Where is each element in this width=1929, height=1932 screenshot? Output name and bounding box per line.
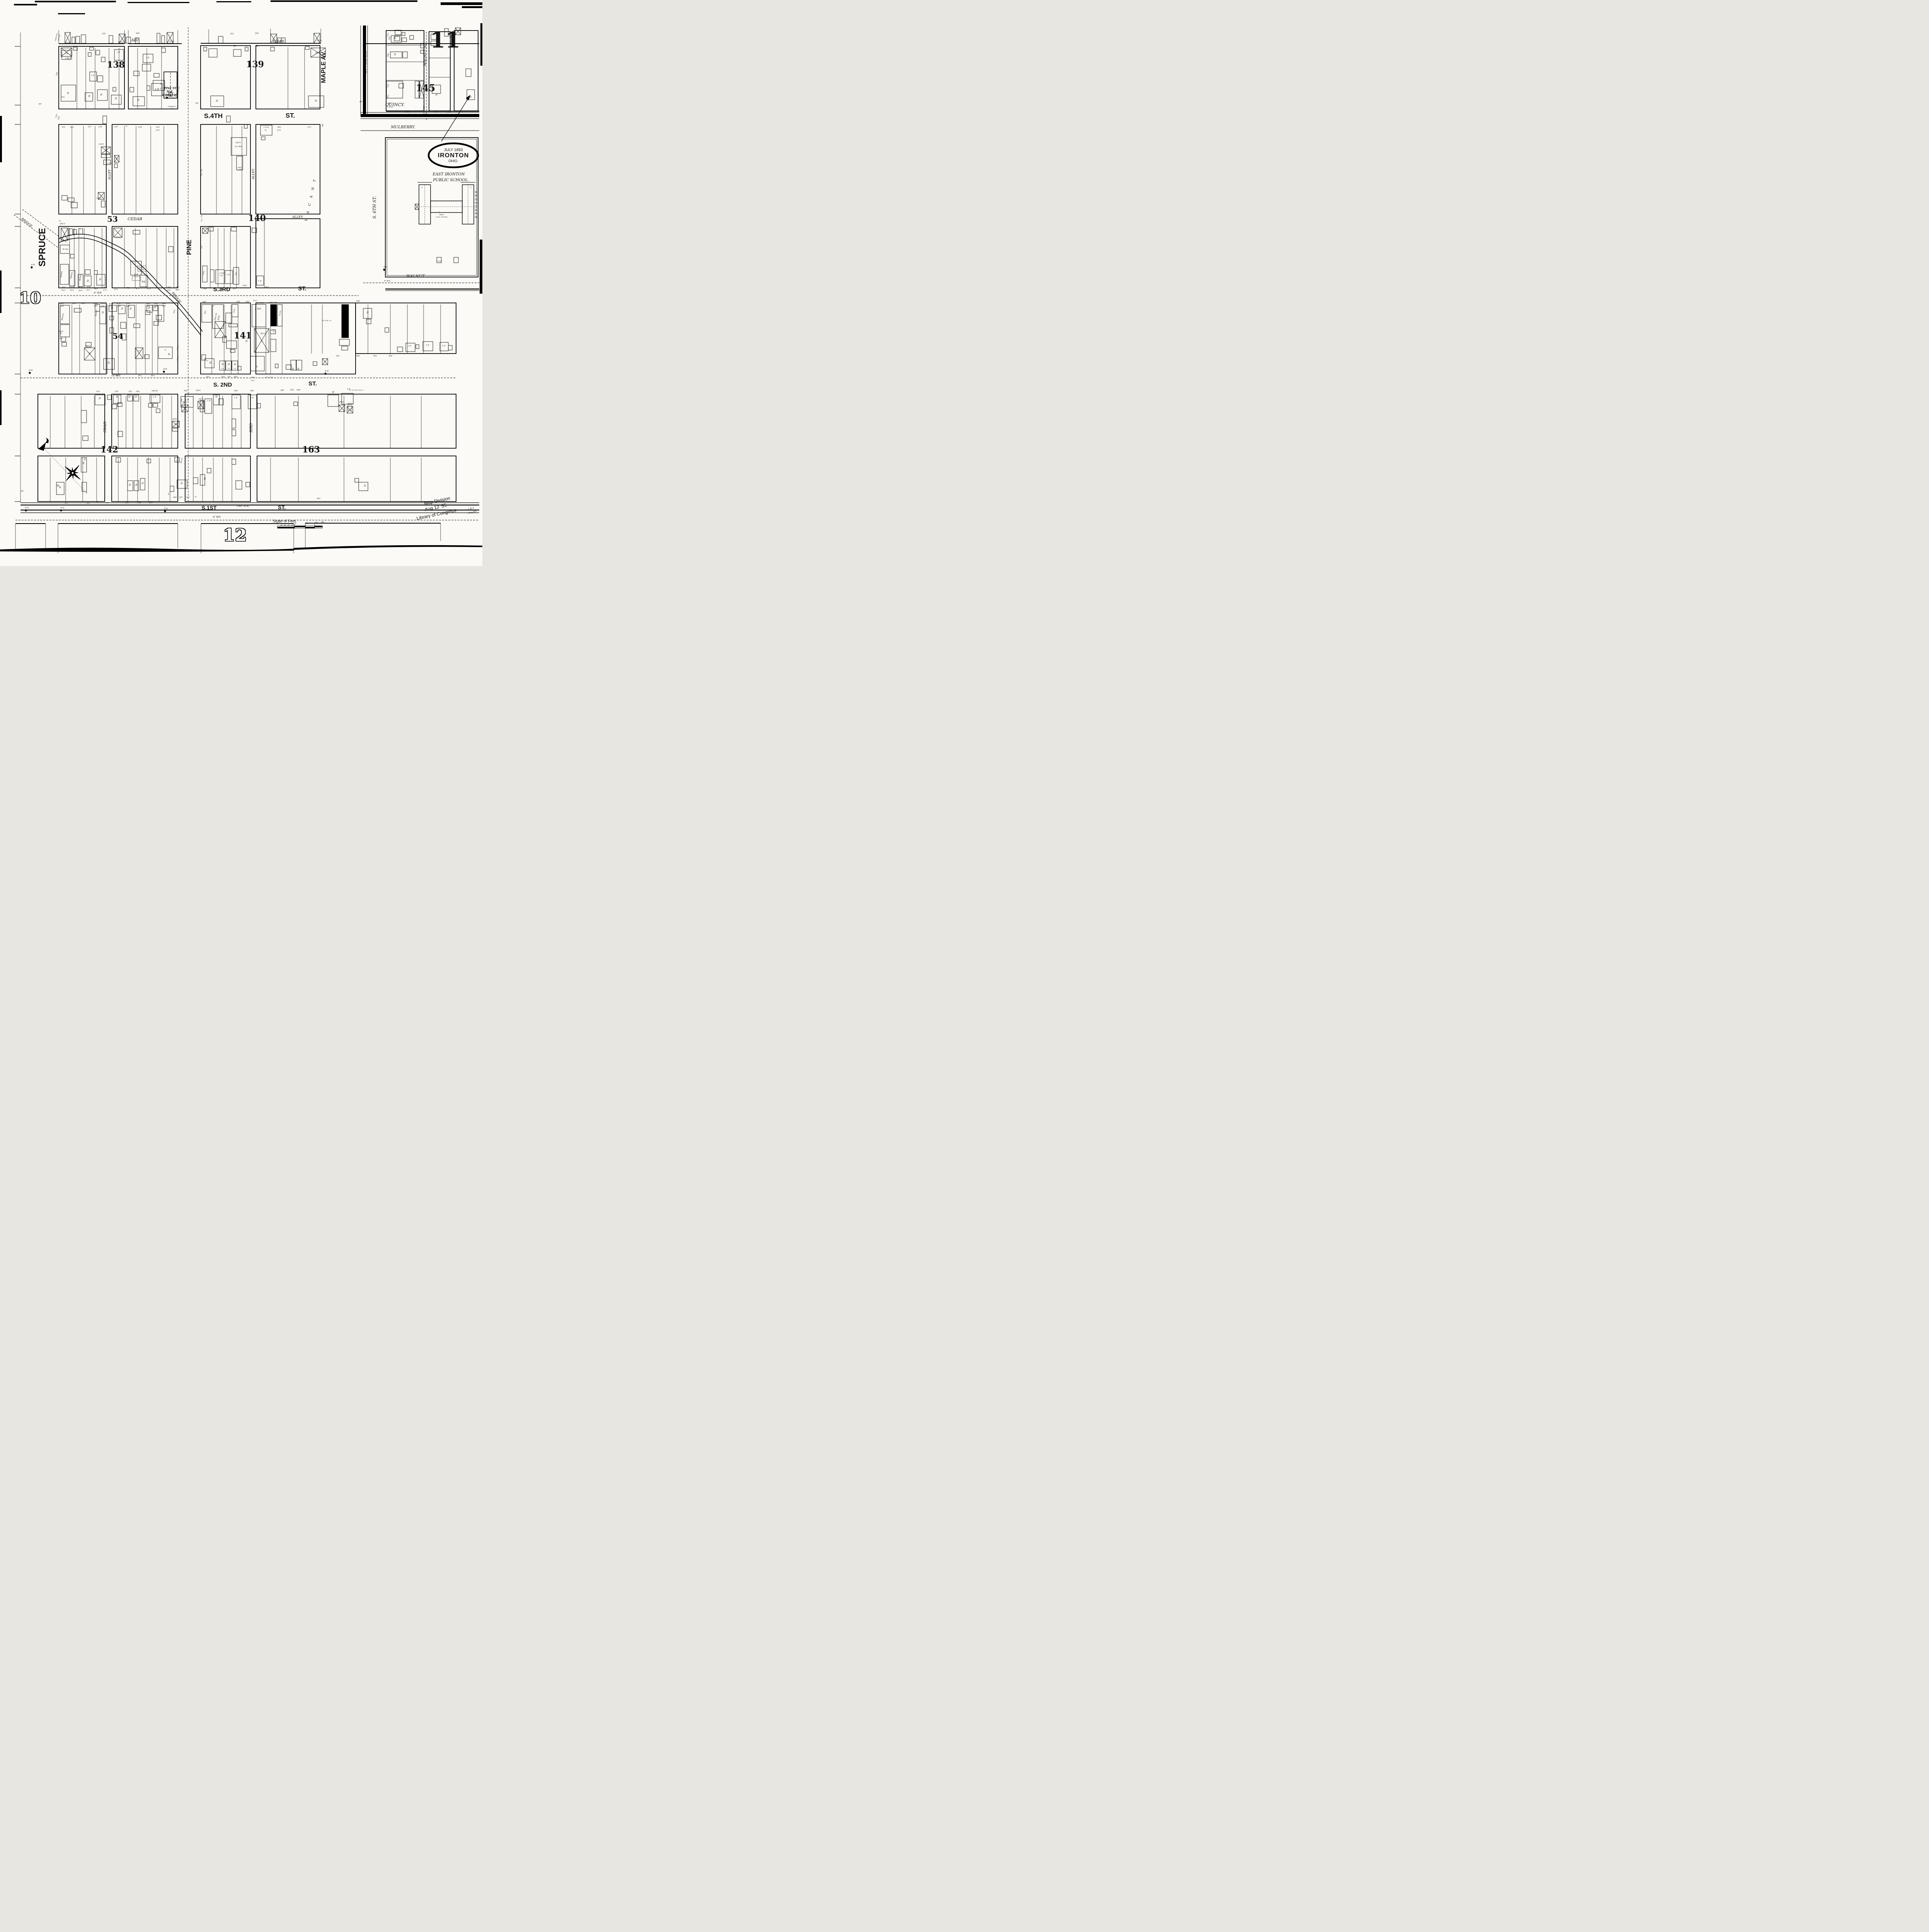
house-number-label: 25' TO EAVES [165,97,176,99]
house-number-label: 373½ [315,53,320,54]
house-number-label: 462½ [85,345,91,347]
house-number-label: 66' [39,104,42,105]
house-number-label: 66' [322,124,325,127]
house-number-label: 1 D [91,75,95,77]
map-label: S. 2ND [213,382,232,388]
map-label: D [135,396,137,398]
map-label: IRONTON [438,153,469,159]
map-label: Gro. [389,107,393,109]
house-number-label: 2 D [347,389,351,391]
house-number-label: 2 D [408,345,412,347]
house-number-label: 349 [203,288,207,290]
map-label: Feed. [218,315,220,321]
house-number-label: (481) [167,289,171,291]
house-number-label: 6" W.P. [384,281,391,282]
house-number-label: 362½ [260,333,266,335]
map-label: Gro. [174,309,176,314]
house-number-label: 400½ [348,403,353,405]
house-number-label: 481 [138,375,142,377]
map-label: D. [209,362,212,364]
map-label: AID [131,39,138,43]
house-number-label: 352½ [235,142,241,144]
house-number-label: 360½ [241,336,246,338]
house-number-label: 393 [373,355,377,357]
map-label: D [298,368,300,371]
house-number-label: 360 [245,301,249,303]
house-number-label: 338 [114,391,118,393]
house-number-label: 342 [128,391,132,393]
house-number-label: (367) [251,380,255,381]
house-number-label: 324 [60,306,64,308]
map-label: COAL STOVES. [436,216,448,218]
map-label: OPEN [238,167,242,168]
map-label: SWAN [104,421,107,432]
house-number-label: (462) [60,303,64,304]
house-number-label: 150 [321,522,324,524]
map-label: D [83,463,85,465]
map-label: D. [315,100,318,102]
house-number-label: 347 [149,502,153,504]
house-number-label: 344 [136,33,140,35]
house-number-label: 349 [173,497,177,499]
house-number-label: 2 [421,187,422,189]
house-number-label: (363) [277,129,281,131]
map-label: Hardw [60,271,63,278]
house-number-label: 2 [470,187,471,189]
house-number-label: 140 [248,214,266,223]
map-label: D.H. [163,369,167,371]
map-label: D [160,83,162,85]
map-label: D. [234,45,237,48]
house-number-label: 2 Sal. [255,308,261,310]
map-label: D [100,94,102,96]
map-label: W [57,485,59,487]
map-label: VACANT [305,174,318,222]
house-number-label: 213 [387,84,390,88]
house-number-label: 129 [201,169,203,172]
house-number-label: 132 [201,219,203,222]
map-label: ALLEY. [252,168,255,179]
house-number-label: 2 D [155,88,159,91]
house-number-label: 129 131 [177,86,180,93]
house-number-label: 351⅓ [199,399,204,401]
house-number-label: 54 [112,332,123,340]
house-number-label: 337 [106,502,109,504]
house-number-label: 2 D [250,397,254,399]
house-number-label: 1 D [220,275,223,277]
house-number-label: 218½ [404,112,409,114]
house-number-label: 1 D [207,400,211,402]
map-label: Barber [95,310,98,316]
map-label: D.H. [25,507,29,509]
house-number-label: 394 [290,389,294,391]
house-number-label: 359 [232,288,236,290]
map-label: Sal. [204,310,207,314]
house-number-label: 6" W.P. [94,292,102,294]
map-label: Ho. [273,331,275,333]
house-number-label: 464 [72,303,76,305]
map-label: PINE [186,240,192,255]
house-number-label: 475½ [116,237,121,239]
map-label: Smo. [272,329,276,331]
house-number-label: 30 [284,524,286,526]
house-number-label: 477 [136,288,140,290]
map-label: D [99,398,101,400]
map-label: D [116,396,118,398]
house-number-label: 343½ [169,41,174,43]
house-number-label: 466 [81,303,85,305]
map-label: Aug.93. [468,510,477,515]
house-number-label: 1½ [164,349,167,351]
house-number-label: (101) [177,356,179,361]
house-number-label: 66' [359,101,363,103]
house-number-label: 359 [233,376,237,378]
house-number-label: (476) [126,303,130,304]
house-number-label: 1¼" W.P. [424,105,426,114]
house-number-label: 2 [261,341,262,343]
house-number-label: 475 [126,287,129,289]
house-number-label: 344 [136,391,140,393]
house-number-label: 1½ [175,423,177,425]
house-number-label: 1½ [234,368,236,369]
map-label: D [89,95,90,98]
house-number-label: 329 [87,287,90,289]
map-label: Barber [79,274,82,281]
house-number-label: 40 [281,524,283,526]
map-label: I.&C.R.R. [237,505,250,508]
house-number-label: 16' [194,496,197,498]
house-number-label: 2 D [426,345,429,347]
map-label: D [115,98,117,100]
house-number-label: 332 [101,306,105,308]
map-label: BRIDGE [171,291,181,303]
map-label: DWEL. [139,267,144,269]
house-number-label: (461) [61,289,66,291]
house-number-label: 357 [227,376,231,378]
house-number-label: (470) [101,303,105,304]
house-number-label: 205 [388,36,391,41]
house-number-label: 66' [168,492,170,495]
house-number-label: 16' [59,220,61,222]
map-label: ST. [286,112,295,119]
house-number-label: 66' [21,491,24,493]
house-number-label: 50 [276,523,278,525]
house-number-label: 368 [250,390,254,392]
house-number-label: 329 [98,126,102,128]
house-number-label: 355 [219,288,223,290]
house-number-label: 369 [251,377,255,379]
house-number-label: 351 [206,376,210,378]
house-number-label: 12 [223,527,247,544]
house-number-label: 333 [103,287,107,289]
house-number-label: 6" W.P. [213,516,221,519]
house-number-label: 327 [88,126,92,128]
house-number-label: 323 [61,287,65,289]
house-number-label: (468) [94,303,98,304]
house-number-label: 57' [176,459,178,462]
house-number-label: 389 [356,355,360,357]
map-label: D [102,312,104,314]
house-number-label: 75' [170,108,173,109]
map-label: OHIO. [448,160,458,163]
house-number-label: 139 [246,60,264,69]
house-number-label: 383 [317,498,320,500]
map-label: D. [364,485,367,487]
map-label: W. Ho. [63,249,69,251]
map-label: WALNUT AL. [424,43,427,66]
house-number-label: 16' [96,502,99,503]
house-number-label: 1½ [138,350,140,352]
house-number-label: 138 [107,61,125,69]
map-label: Ice Ho. [279,310,281,316]
house-number-label: 353 [179,497,183,499]
house-number-label: 365 [277,127,281,129]
house-number-label: 461½ [60,223,65,225]
house-number-label: 368 370 [269,302,277,304]
house-number-label: 1 D [258,281,262,282]
map-label: EAST IRONTON [432,173,465,177]
map-label: Ice Hos. [235,146,243,148]
house-number-label: 2 1ST [238,169,242,170]
house-number-label: 346-48 [152,391,158,393]
house-number-label: 479 [147,288,151,290]
house-number-label: 394½ [339,402,344,404]
house-number-label: 10 [19,291,41,306]
house-number-label: 323½ [65,43,71,44]
map-label: S. 7TH ST. [363,51,368,73]
house-number-label: 473 [114,289,118,291]
house-number-label: 209 [387,53,390,58]
house-number-label: 357 [226,288,230,290]
house-number-label: 131½ [107,163,112,165]
map-label: VAC. [243,285,247,287]
house-number-label: 145 [416,83,435,93]
map-label: D [121,308,123,310]
map-label: D [130,308,132,310]
map-label: D. [108,362,111,364]
map-label: D [111,307,113,310]
house-number-label: 1½ [115,158,117,159]
house-number-label: (472) [109,303,113,304]
house-number-label: (146) [55,114,58,118]
house-number-label: 2 D [65,53,68,55]
map-label: MAPLE AV. [321,51,327,83]
map-label: D [234,364,236,366]
house-number-label: 1½ [228,368,230,369]
house-number-label: 363 [265,287,269,289]
house-number-label: 20 [288,524,289,526]
map-label: D.H. [164,508,168,510]
house-number-label: 339½ [118,42,123,44]
house-number-label: 345 [167,287,171,289]
house-number-label: (480) [146,303,150,304]
map-label: S [86,492,87,494]
sanborn-map-sheet: S.4THST.S.3RDST.S. 2NDST.S.1STST.I.&C.R.… [0,0,482,566]
map-label: D. [436,94,438,96]
house-number-label: 483 [175,289,179,291]
house-number-label: (482) [154,303,158,304]
house-number-label: 1½ [221,368,224,369]
house-number-label: 323 [61,127,65,129]
map-label: D. [87,280,90,282]
house-number-label: 134½ [99,144,104,146]
house-number-label: 327 [78,287,82,289]
house-number-label: 16' [125,126,128,127]
map-label: Bakery. [61,313,65,320]
house-number-label: 126 [201,246,203,249]
map-label: COAL [437,260,442,262]
house-number-label: 330 [94,306,97,308]
house-number-label: 126½ [96,198,102,200]
map-label: HEAT: [439,214,444,216]
map-label: D [367,312,369,314]
house-number-label: 343 [125,502,129,504]
house-number-label: 2 D [153,396,157,398]
house-number-label: 1 D [117,52,120,54]
map-label: E [84,459,86,461]
map-label: S.4TH [204,113,223,119]
house-number-label: 2 [438,212,439,214]
map-label: D [246,340,248,343]
house-number-label: 333 [86,503,90,505]
house-number-label: 66' [196,103,199,105]
house-number-label: 1½ [212,305,215,307]
house-number-label: 66' [388,103,392,105]
map-label: D [222,364,224,366]
house-number-label: 129 [58,116,60,121]
map-label: SPRUCE [38,228,47,267]
house-number-label: 353 [213,288,217,290]
house-number-label: 92' TO 1ST. FR. D. [349,389,363,391]
house-number-label: 325 [70,287,74,289]
house-number-label: 215 [387,95,390,99]
house-number-label: 483 [151,375,155,377]
map-label: D. [216,100,219,102]
house-number-label: (362) [253,300,257,301]
map-label: D.H. [31,264,35,266]
map-label: Sal. [141,281,146,283]
house-number-label: 2 D [226,274,230,276]
house-number-label: 351 [186,497,190,499]
map-label: WALNUT. [406,275,425,279]
house-number-label: 142 144 [58,34,61,41]
house-number-label: 349½ [172,419,177,421]
house-number-label: 1½ [89,352,91,354]
map-label: FRAME [139,269,144,270]
house-number-label: 134 [56,72,58,77]
map-label: OVEN [59,338,63,340]
map-label: D [204,478,206,480]
map-label: HO. [60,333,63,334]
map-label: M.E. [167,90,174,93]
house-number-label: 53 [107,215,118,223]
house-number-label: 364 [234,390,238,392]
house-number-label: 399 [388,355,392,357]
house-number-label: 1 D [442,345,446,347]
house-number-label: 400 [296,389,300,391]
map-label: D. [168,354,171,356]
map-label: D [129,396,131,398]
house-number-label: 338 [102,33,106,35]
house-number-label: 350 [202,301,206,303]
house-number-label: (467) [87,289,91,291]
map-label: MULBERRY. [391,126,415,129]
house-number-label: 131 [201,173,203,176]
map-label: D [142,483,144,485]
house-number-label: 142 [100,446,118,454]
map-label: D [394,37,396,40]
house-number-label: 2 TO BE [263,127,269,128]
house-number-label: 339 [138,127,142,129]
house-number-label: 327 [65,503,68,505]
house-number-label: 10 [291,524,293,526]
house-number-label: 130 [201,215,203,218]
house-number-label: 354 [184,390,187,392]
house-number-label: (463) [70,289,74,291]
map-label: S. 6TH ST. [373,196,377,219]
map-label: Gro. [233,308,236,313]
map-label: D [394,54,396,56]
map-label: D [67,92,69,95]
house-number-label: 469 [94,288,98,290]
map-label: D [332,391,334,394]
house-number-label: (471) [103,289,107,291]
house-number-label: 343 [156,127,160,129]
house-number-label: 371 373 [265,377,273,379]
house-number-label: 352 [230,33,234,35]
map-label: ALLEY [108,169,111,180]
map-label: ST. [308,381,317,387]
house-number-label: 345 [137,502,141,504]
house-number-label: 233 [447,111,451,113]
house-number-label: 229 [432,112,436,114]
map-label: Gro. [61,97,65,99]
house-number-label: (341) [156,129,160,131]
house-number-label: (484) [162,303,166,304]
house-number-label: 381 [336,355,340,357]
house-number-label: 373 [307,127,311,129]
house-number-label: 348 [162,306,166,308]
map-label: ALLEY [292,216,303,219]
house-number-label: 340 [126,306,130,308]
house-number-label: 347 [175,287,179,289]
map-label: D. [255,366,258,368]
map-label: D. [256,45,259,48]
map-label: JULY 1893 [444,148,463,152]
map-label: D. [470,96,472,99]
house-number-label: (474) [117,303,121,304]
map-label: PINE ST [164,87,177,90]
map-label: D [292,368,294,371]
house-number-label: 355 [221,376,225,378]
house-number-label: 2 D [134,274,138,276]
house-number-label: 333 [114,126,118,128]
house-number-label: 373⅓ [317,40,322,42]
map-label: D [136,484,138,486]
map-label: BRIDGE. [20,218,33,229]
map-label: Gro. [203,270,206,275]
map-label: D. [59,486,62,489]
house-number-label: 333 [115,375,119,377]
map-label: D [181,483,183,485]
map-label: D.H. [60,507,65,509]
map-label: D [228,364,230,366]
house-number-label: 356 [255,33,259,35]
map-label: BAKE [59,331,63,332]
house-number-label: 354½ [196,390,201,392]
house-number-label: 2 D [65,58,68,60]
house-number-label: 364 366 [256,303,264,304]
